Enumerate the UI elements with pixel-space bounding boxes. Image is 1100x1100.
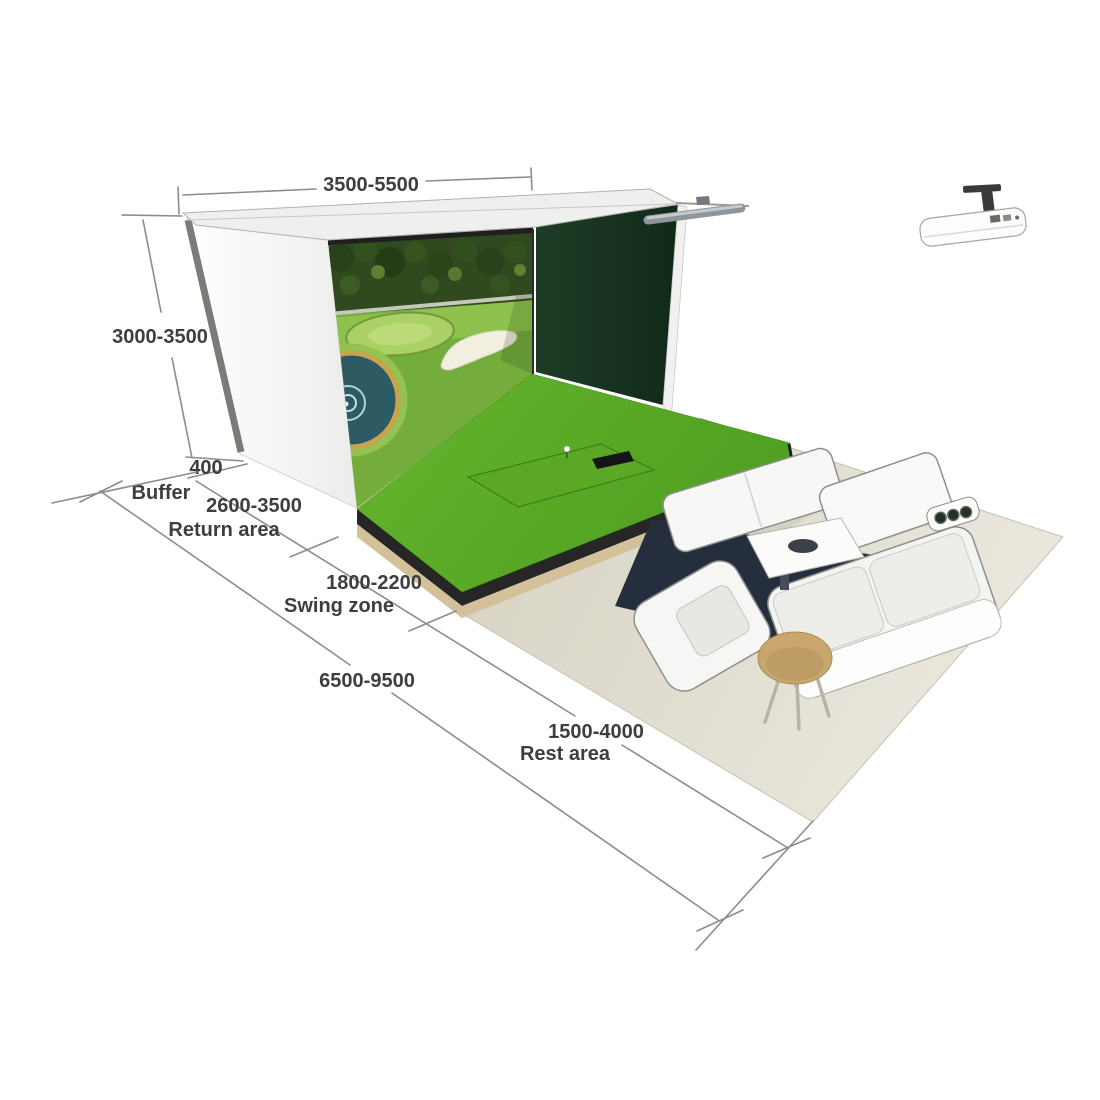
dim-height-value: 3000-3500: [112, 326, 208, 348]
golf-ball: [564, 446, 570, 452]
bar-knob: [696, 196, 710, 205]
projector-body: [919, 207, 1028, 248]
dim-swing-label: Swing zone: [284, 595, 394, 617]
dim-return-label: Return area: [168, 519, 280, 541]
dim-swing-value: 1800-2200: [326, 572, 422, 594]
dim-buffer-value: 400: [189, 457, 222, 479]
impact-wall-shading: [536, 205, 678, 405]
dim-return-value: 2600-3500: [206, 495, 302, 517]
projector: [919, 184, 1028, 247]
diagram-page: 3500-5500 3000-3500 400 Buffer 2600-3500…: [0, 0, 1100, 1100]
dim-rest-label: Rest area: [520, 743, 611, 765]
dim-depth-value: 6500-9500: [319, 670, 415, 692]
diagram-canvas: 3500-5500 3000-3500 400 Buffer 2600-3500…: [0, 0, 1100, 1100]
bowl: [788, 539, 818, 553]
dim-buffer-label: Buffer: [132, 482, 191, 504]
dim-rest-value: 1500-4000: [548, 721, 644, 743]
extension-line-right: [696, 821, 813, 950]
dim-width-value: 3500-5500: [323, 174, 419, 196]
